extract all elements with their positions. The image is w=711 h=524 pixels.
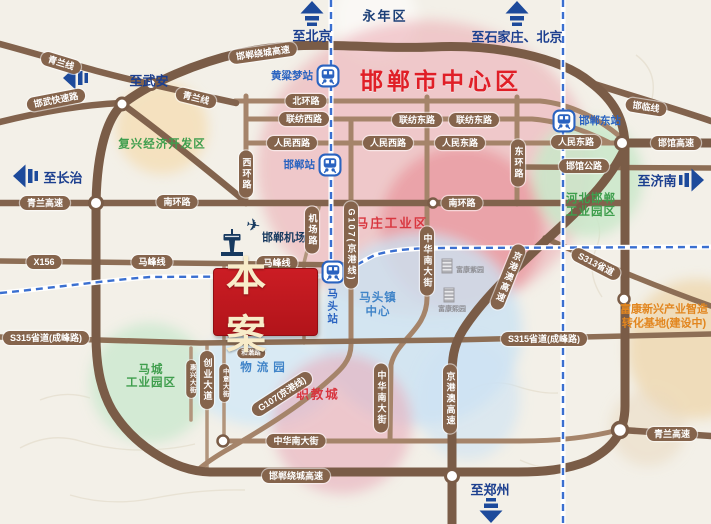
road-label-16: 南环路 [441,196,482,210]
road-label-13: 邯馆高速 [651,136,701,150]
district-line: 工业园区 [126,377,176,390]
district-line: 邯郸市中心区 [360,62,522,96]
labels-layer: 邯郸绕城高速青兰线邯武快速路青兰线北环路联纺西路联纺东路联纺东路人民西路人民西路… [0,0,711,524]
district-line: 富康新兴产业智造 [620,303,708,317]
airport-label-line: 邯郸 [262,232,284,244]
road-label-5: 联纺西路 [279,112,329,126]
road-label-2: 邯武快速路 [26,87,87,112]
road-label-1: 青兰线 [39,50,82,75]
road-label-22: S315省道(成峰路) [501,332,587,346]
direction-arrow-icon [504,1,530,28]
station-icon-glyph [553,110,576,133]
station-icon-glyph [322,261,345,284]
project-label: 本案 [214,244,317,360]
station-icon-huangliangmeng [317,65,340,88]
road-label-19: 马峰线 [131,255,172,269]
district-label-matou-center: 马头镇中心 [359,292,397,320]
road-label-18: X156 [26,255,61,269]
road-label-4: 北环路 [285,94,326,108]
direction-label-wuan: 至武安 [129,71,168,90]
direction-arrow-zhengzhou [478,497,504,524]
direction-label-zhengzhou: 至郑州 [470,480,509,499]
road-label-10: 人民东路 [435,136,485,150]
station-label-line: 邯郸 [579,115,600,127]
road-label-36: 京港澳高速 [489,242,528,311]
building-icon-fukang-xiyuan [444,288,455,303]
road-label-23: S313省道 [569,246,623,283]
direction-arrow-icon [299,1,325,28]
direction-label-changzhi: 至长治 [43,168,82,187]
road-label-37: 创业大道 [200,351,214,409]
direction-label-jinan: 至济南 [637,171,676,190]
road-label-26: 青兰高速 [647,427,697,441]
road-label-12: 邯临线 [625,97,668,117]
map-stage: 本案 邯郸绕城高速青兰线邯武快速路青兰线北环路联纺西路联纺东路联纺东路人民西路人… [0,0,711,524]
road-label-33: 中华南大街 [420,227,434,296]
station-icon-handan [319,154,342,177]
road-label-11: 人民东路 [551,135,601,149]
road-label-30: 东环路 [511,140,525,187]
direction-arrow-icon [478,497,504,524]
district-label-yongnian: 永年区 [362,6,407,25]
district-line: 马城 [126,364,176,377]
district-label-macheng-yuanqu: 马城工业园区 [126,364,176,390]
station-label-huangliangmeng: 黄粱梦站 [271,70,313,82]
project-marker: 本案 [213,268,318,336]
district-line: 马头镇 [359,292,397,306]
district-line: 河北邯郸 [566,193,616,206]
district-line: 永年区 [362,6,407,25]
direction-label-beijing: 至北京 [292,26,331,45]
airport-label-line: 机场 [284,232,306,244]
station-label-handan: 邯郸站 [284,159,316,171]
station-icon-handandong [553,110,576,133]
district-line: 中心 [359,306,397,320]
direction-arrow-icon [678,167,705,193]
road-label-39: 中意大街 [219,364,229,402]
direction-arrow-icon [13,163,40,189]
road-label-29: 西环路 [239,151,253,198]
road-label-35: 京港澳高速 [443,365,457,434]
direction-arrow-jinan [678,167,704,194]
road-label-17: 青兰高速 [20,196,70,210]
road-label-25: 邯郸绕城高速 [262,469,330,483]
station-icon-matou [322,261,345,284]
road-label-24: 中华南大街 [266,434,325,448]
station-label-handandong: 邯郸东站 [579,115,621,127]
road-label-14: 邯馆公路 [559,159,609,173]
direction-arrow-shijiazhuang-beijing [504,1,530,28]
station-icon-glyph [317,65,340,88]
road-label-38: 惠兴大街 [186,360,196,398]
road-label-15: 南环路 [156,195,197,209]
building-label-fukang-ziyuan: 富康紫园 [456,265,484,275]
district-line: 工业园区 [566,206,616,219]
direction-arrow-changzhi [13,163,39,190]
road-label-6: 联纺东路 [392,113,442,127]
district-label-mazhuang-gongyequ: 马庄工业区 [356,213,429,232]
building-icon-fukang-ziyuan [442,259,453,274]
district-label-wuliuyuan: 物流园 [240,362,290,376]
building-label-fukang-xiyuan: 富康熙园 [438,304,466,314]
district-label-fukang-base: 富康新兴产业智造转化基地(建设中) [620,303,708,331]
road-label-3: 青兰线 [174,86,217,110]
direction-arrow-beijing [299,1,325,28]
district-line: 马庄工业区 [356,213,429,232]
district-line: 转化基地(建设中) [620,317,708,331]
district-label-hebei-handan-yuanqu: 河北邯郸工业园区 [566,193,616,219]
district-line: 复兴经济开发区 [118,138,206,151]
road-label-7: 联纺东路 [449,113,499,127]
station-label-line: 东站 [600,115,621,127]
station-label-matou: 马头站 [326,288,338,326]
road-label-21: S315省道(成峰路) [3,331,89,345]
district-label-city-center: 邯郸市中心区 [360,62,522,96]
airport-label: 邯郸机场 [262,232,306,245]
station-icon-glyph [319,154,342,177]
road-label-32: G107(京港线) [344,201,358,288]
plane-icon: ✈ [244,215,262,237]
road-label-34: 中华南大街 [374,364,388,433]
district-label-fuxing-kaifaqu: 复兴经济开发区 [118,138,206,151]
district-line: 物流园 [240,362,290,376]
road-label-8: 人民西路 [267,136,317,150]
road-label-0: 邯郸绕城高速 [228,41,297,64]
direction-label-shijiazhuang-beijing: 至石家庄、北京 [471,27,562,46]
road-label-9: 人民西路 [363,136,413,150]
